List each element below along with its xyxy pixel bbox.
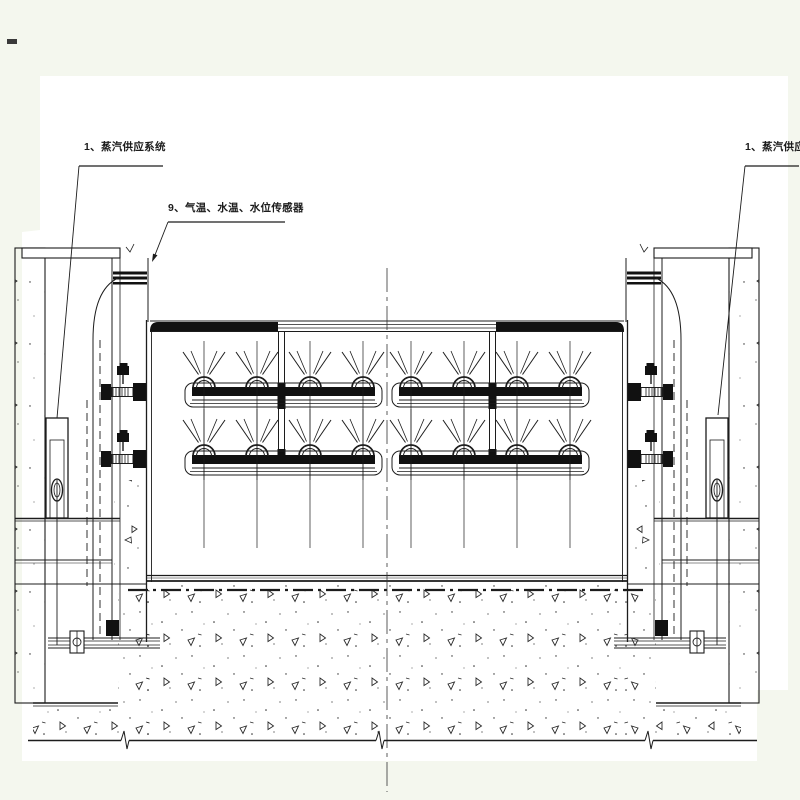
engineering-drawing-page: 1、蒸汽供应系统 9、气温、水温、水位传感器 1、蒸汽供应系统 bbox=[0, 0, 800, 800]
gate-heating-system-drawing: 1、蒸汽供应系统 9、气温、水温、水位传感器 1、蒸汽供应系统 bbox=[0, 0, 800, 800]
scan-artifact-mark bbox=[7, 39, 17, 44]
label-steam-supply-right: 1、蒸汽供应系统 bbox=[745, 140, 800, 153]
label-sensors: 9、气温、水温、水位传感器 bbox=[168, 201, 304, 214]
label-steam-supply-left: 1、蒸汽供应系统 bbox=[84, 140, 166, 153]
